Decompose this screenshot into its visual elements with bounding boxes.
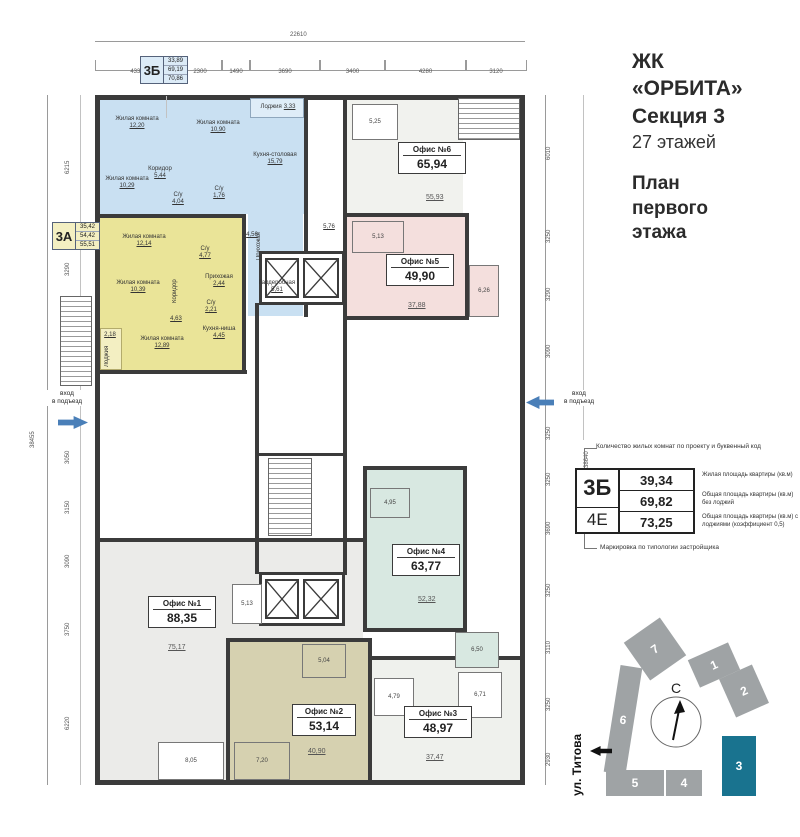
stairs-core-icon [268, 458, 312, 536]
dim-left: 3150 [65, 488, 71, 514]
site-block-6[interactable]: 6 [604, 665, 643, 775]
stairs-entry-top-icon [458, 98, 520, 140]
dim-right: 3250 [546, 460, 552, 486]
dim-left: 3750 [65, 610, 71, 636]
office-1-card: Офис №1 88,35 [148, 596, 216, 628]
entrance-label-right: вход в подъезд [556, 390, 602, 406]
dim-top-seg: 4280 [384, 60, 467, 71]
room-label: Кухня-столовая15,79 [246, 152, 304, 166]
dim-line-left [80, 95, 81, 785]
room-area: 2,18 [100, 332, 120, 339]
room-label: Жилая комната10,39 [108, 280, 168, 294]
room-label-vertical: Лоджия [104, 342, 110, 370]
office-2-porch: 7,20 [234, 742, 290, 780]
site-block-3-active[interactable]: 3 [722, 736, 756, 796]
office-3-area: 37,47 [426, 754, 444, 761]
legend-bracket-bottom [584, 534, 597, 549]
floor-plan-page: 22610 4330 2300 1490 3690 3400 4280 3120… [0, 0, 800, 837]
site-block-5[interactable]: 5 [606, 770, 664, 796]
page-title: ЖК «ОРБИТА» Секция 3 27 этажей [632, 48, 743, 155]
room-label: Жилая комната10,90 [192, 120, 244, 134]
office-2-card: Офис №2 53,14 [292, 704, 356, 736]
room-label: Прихожая2,44 [196, 274, 242, 288]
room-label: С/у4,77 [190, 246, 220, 260]
dim-line-right [545, 95, 546, 785]
office-2-bathroom: 5,04 [302, 644, 346, 678]
wall [363, 466, 367, 632]
entrance-arrow-right-icon [58, 416, 88, 429]
wall [226, 638, 230, 785]
dim-top-seg: 3690 [249, 60, 321, 71]
entrance-label-left: вход в подъезд [42, 390, 92, 406]
dim-right: 2930 [546, 740, 552, 766]
room-label-vertical: Коридор [172, 266, 178, 316]
dim-right: 3250 [546, 685, 552, 711]
compass-icon [648, 692, 704, 748]
room-label: Жилая комната12,14 [112, 234, 176, 248]
wall [95, 214, 245, 218]
wall [95, 538, 367, 542]
wall [343, 213, 469, 217]
dim-top-seg: 3120 [465, 60, 527, 71]
dim-left: 6215 [65, 148, 71, 174]
dim-right: 3110 [546, 628, 552, 654]
legend-note-total: Общая площадь квартиры (кв.м) без лоджий [702, 492, 798, 508]
room-label: С/у4,04 [164, 192, 192, 206]
dim-top-seg: 1490 [221, 60, 251, 71]
office-5-card: Офис №5 49,90 [386, 254, 454, 286]
dim-left: 3050 [65, 438, 71, 464]
street-label: ул. Титова [570, 712, 584, 796]
dim-line-left-total [47, 95, 48, 785]
legend-note-living: Жилая площадь квартиры (кв.м) [702, 472, 798, 480]
elevator-icon [303, 258, 339, 298]
dim-top-seg: 3400 [319, 60, 386, 71]
office-6-area: 55,93 [426, 194, 444, 201]
entrance-arrow-left-icon [526, 396, 554, 409]
plan-subtitle: План первого этажа [632, 172, 708, 246]
apartment-3a-card: 3А 35,42 54,42 55,51 [52, 222, 100, 250]
lobby-area: 5,76 [314, 224, 344, 231]
wall [463, 466, 467, 632]
wall [257, 453, 347, 456]
room-label: Гардеробная5,61 [250, 280, 304, 294]
legend-top-note: Количество жилых комнат по проекту и бук… [596, 443, 796, 450]
room-area: 4,63 [164, 316, 188, 323]
dim-right: 3250 [546, 414, 552, 440]
room-label: Жилая комната12,89 [126, 336, 198, 350]
dim-right: 3090 [546, 332, 552, 358]
office-4-annex: 6,50 [455, 632, 499, 668]
dim-right: 6010 [546, 134, 552, 160]
dim-line-right-total [583, 95, 584, 440]
room-label-vertical: Прихожая [256, 220, 262, 272]
wall [343, 95, 347, 575]
office-1-porch: 8,05 [158, 742, 224, 780]
dim-line-top-total [95, 41, 525, 42]
wall [363, 628, 467, 632]
dim-top-total: 22610 [290, 32, 307, 38]
dim-right: 3290 [546, 275, 552, 301]
dim-left: 3290 [65, 250, 71, 276]
stairs-exterior-left-icon [60, 296, 92, 386]
dim-left: 3090 [65, 542, 71, 568]
dim-right: 3250 [546, 571, 552, 597]
legend-bracket-top [584, 448, 597, 469]
card-leader-line [166, 96, 167, 118]
legend-note-total-loggia: Общая площадь квартиры (кв.м) с лоджиями… [702, 514, 798, 530]
room-label: Коридор5,44 [138, 166, 182, 180]
room-label: Кухня-ниша4,45 [198, 326, 240, 340]
office-3-card: Офис №3 48,97 [404, 706, 472, 738]
wall [343, 316, 469, 320]
wall [255, 303, 259, 574]
site-block-4[interactable]: 4 [666, 770, 702, 796]
elevator-icon [265, 579, 299, 619]
office-2-area: 40,90 [308, 748, 326, 755]
room-area: 4,56 [244, 232, 260, 239]
office-4-card: Офис №4 63,77 [392, 544, 460, 576]
office-1-bathroom: 5,13 [232, 584, 262, 624]
compass-north-label: С [671, 680, 681, 696]
elevator-icon [303, 579, 339, 619]
wall [226, 638, 372, 642]
office-5-bathroom: 5,13 [352, 221, 404, 253]
wall [95, 370, 247, 374]
office-6-lobby: 5,25 [352, 104, 398, 140]
wall [368, 656, 525, 660]
office-5-annex: 6,26 [469, 265, 499, 317]
office-4-area: 52,32 [418, 596, 436, 603]
legend-bottom-note: Маркировка по типологии застройщика [600, 544, 790, 551]
dim-left-total: 38455 [30, 418, 36, 448]
room-label-loggia: Лоджия3,33 [252, 104, 304, 111]
wall [363, 466, 467, 470]
room-label: Жилая комната12,20 [104, 116, 170, 130]
dim-right: 3250 [546, 217, 552, 243]
dim-left: 6220 [65, 704, 71, 730]
office-1-area: 75,17 [168, 644, 186, 651]
room-label: С/у1,76 [206, 186, 232, 200]
wall [368, 638, 372, 785]
apartment-3b-card: 3Б 33,89 69,19 70,86 [140, 56, 188, 84]
room-label: С/у2,21 [196, 300, 226, 314]
legend-card: 3Б 4Е 39,34 69,82 73,25 [575, 468, 695, 534]
dim-right: 3690 [546, 509, 552, 535]
office-5-area: 37,88 [408, 302, 426, 309]
office-6-card: Офис №6 65,94 [398, 142, 466, 174]
office-4-bathroom: 4,95 [370, 488, 410, 518]
